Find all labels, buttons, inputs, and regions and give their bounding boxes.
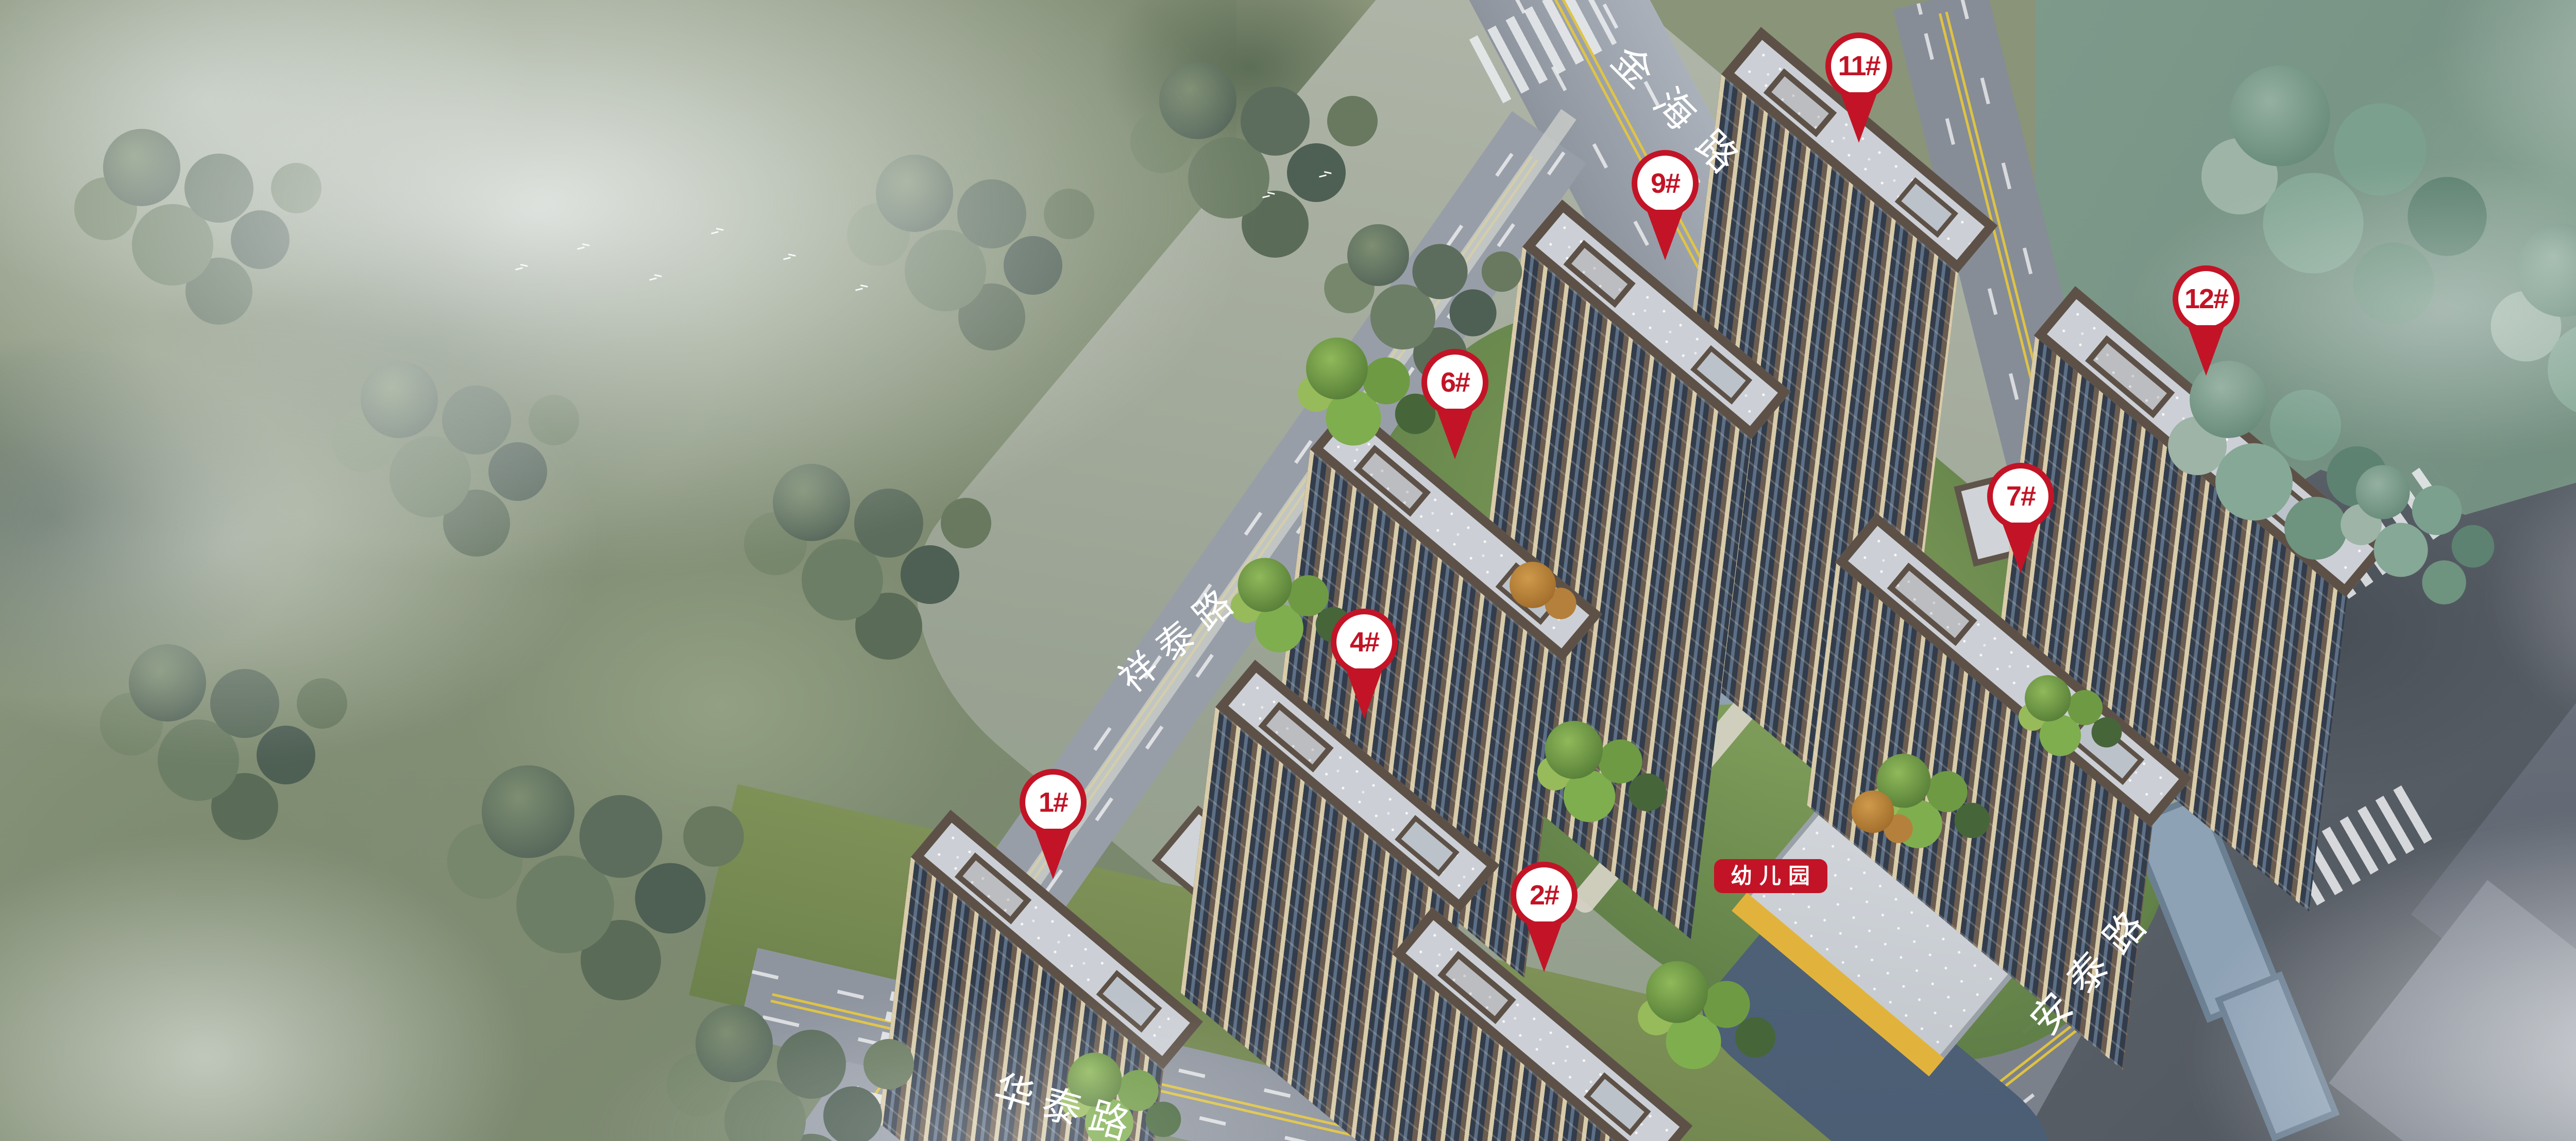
tree-cluster	[103, 129, 180, 206]
tree-cluster	[361, 361, 438, 438]
marker-label: 7#	[2006, 482, 2035, 510]
building-marker-11[interactable]: 11#	[1825, 32, 1892, 156]
tree-cluster	[1545, 721, 1603, 779]
tree-cluster	[1347, 224, 1409, 286]
marker-label: 9#	[1651, 170, 1680, 197]
marker-pointer-icon	[1526, 921, 1563, 972]
building-marker-7[interactable]: 7#	[1987, 463, 2054, 586]
marker-label: 12#	[2184, 285, 2228, 313]
tree-cluster	[2230, 66, 2330, 166]
marker-pointer-icon	[1840, 92, 1877, 143]
marker-label: 2#	[1530, 881, 1558, 909]
marker-circle: 2#	[1511, 862, 1578, 929]
marker-label: 4#	[1350, 628, 1379, 656]
autumn-tree	[1852, 791, 1894, 833]
building-marker-9[interactable]: 9#	[1632, 150, 1699, 274]
building-marker-1[interactable]: 1#	[1020, 769, 1087, 893]
marker-circle: 1#	[1020, 769, 1087, 836]
marker-pointer-icon	[1436, 409, 1473, 459]
tree-cluster	[2356, 465, 2410, 519]
marker-circle: 7#	[1987, 463, 2054, 530]
tree-cluster	[1306, 338, 1368, 399]
marker-pointer-icon	[2002, 523, 2039, 573]
building-marker-6[interactable]: 6#	[1421, 349, 1488, 473]
tree-cluster	[2025, 675, 2071, 721]
tree-cluster	[773, 464, 850, 541]
kindergarten-badge: 幼儿园	[1714, 859, 1827, 893]
marker-label: 1#	[1039, 788, 1067, 816]
tree-cluster	[1159, 62, 1236, 139]
marker-pointer-icon	[2188, 325, 2225, 376]
aerial-site-rendering: 金海路 祥泰路 华泰路 安泰路 幼儿园 11# 9# 12# 6# 7#	[0, 0, 2576, 1141]
tree-cluster	[876, 155, 953, 232]
building-marker-2[interactable]: 2#	[1511, 862, 1578, 985]
marker-circle: 11#	[1825, 32, 1892, 99]
marker-label: 6#	[1440, 368, 1469, 396]
marker-circle: 12#	[2173, 265, 2240, 332]
tree-cluster	[1646, 961, 1708, 1023]
marker-circle: 6#	[1421, 349, 1488, 416]
building-marker-12[interactable]: 12#	[2173, 265, 2240, 389]
marker-circle: 4#	[1331, 609, 1398, 676]
marker-pointer-icon	[1346, 668, 1383, 719]
marker-pointer-icon	[1647, 210, 1684, 260]
tree-cluster	[696, 1005, 773, 1082]
marker-pointer-icon	[1035, 829, 1072, 879]
marker-circle: 9#	[1632, 150, 1699, 217]
tree-cluster	[482, 765, 574, 858]
building-marker-4[interactable]: 4#	[1331, 609, 1398, 732]
autumn-tree	[1510, 562, 1556, 608]
tree-cluster	[129, 644, 206, 721]
marker-label: 11#	[1838, 52, 1879, 80]
